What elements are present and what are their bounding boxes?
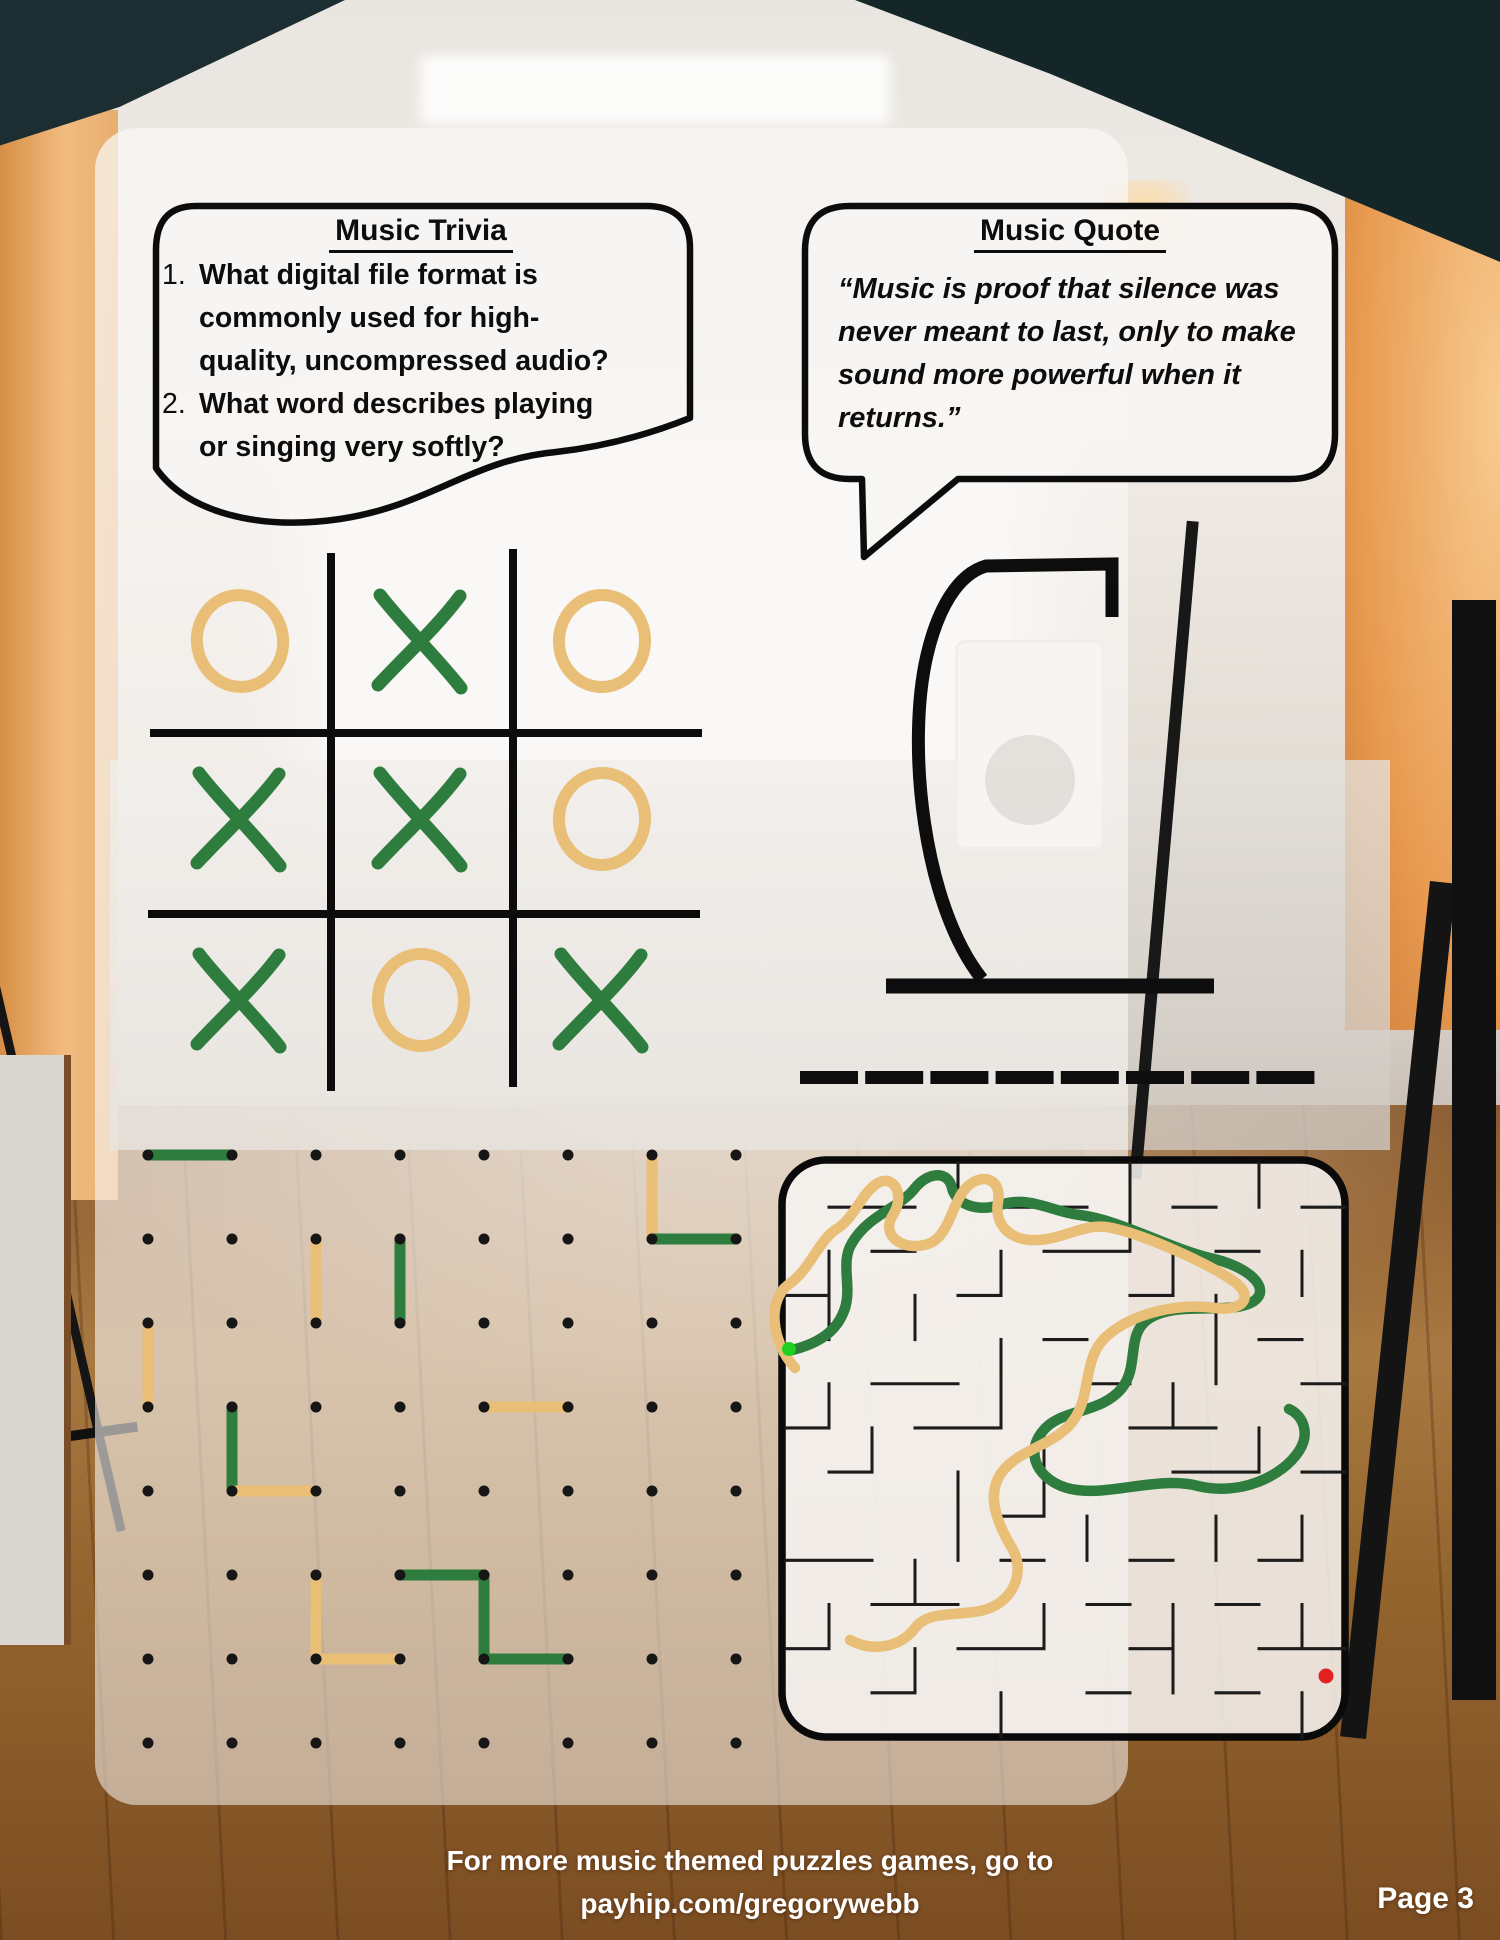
grid-dot (311, 1402, 322, 1413)
grid-dot (731, 1402, 742, 1413)
dots-and-boxes-board[interactable] (143, 1150, 742, 1749)
x-mark (197, 773, 280, 866)
grid-dot (311, 1318, 322, 1329)
trivia-question: 1.What digital file format is commonly u… (162, 254, 624, 383)
maze-board[interactable] (774, 1160, 1345, 1737)
grid-dot (731, 1570, 742, 1581)
grid-dot (731, 1486, 742, 1497)
trivia-question-list: 1.What digital file format is commonly u… (162, 254, 624, 469)
grid-dot (647, 1150, 658, 1161)
grid-dot (563, 1570, 574, 1581)
grid-dot (479, 1570, 490, 1581)
maze-start-dot (782, 1342, 796, 1356)
trivia-question: 2.What word describes playing or singing… (162, 383, 624, 469)
footer-link: payhip.com/gregorywebb (0, 1888, 1500, 1920)
grid-dot (647, 1738, 658, 1749)
grid-dot (395, 1654, 406, 1665)
grid-dot (395, 1738, 406, 1749)
grid-dot (227, 1234, 238, 1245)
grid-dot (395, 1486, 406, 1497)
grid-dot (479, 1318, 490, 1329)
grid-dot (143, 1654, 154, 1665)
x-mark (197, 954, 280, 1047)
grid-dot (563, 1318, 574, 1329)
o-mark (556, 770, 648, 868)
grid-dot (647, 1234, 658, 1245)
letter-blank (1061, 1071, 1119, 1084)
grid-dot (143, 1234, 154, 1245)
grid-dot (227, 1738, 238, 1749)
grid-dot (563, 1738, 574, 1749)
grid-dot (227, 1402, 238, 1413)
grid-dot (479, 1738, 490, 1749)
maze-end-dot (1319, 1669, 1334, 1684)
grid-dot (143, 1318, 154, 1329)
grid-dot (143, 1486, 154, 1497)
grid-dot (143, 1738, 154, 1749)
letter-blank (1126, 1071, 1184, 1084)
grid-dot (227, 1486, 238, 1497)
grid-dot (395, 1570, 406, 1581)
grid-dot (731, 1318, 742, 1329)
grid-dot (395, 1402, 406, 1413)
grid-dot (647, 1570, 658, 1581)
grid-dot (731, 1738, 742, 1749)
letter-blank (1256, 1071, 1314, 1084)
x-mark (378, 773, 461, 866)
grid-dot (227, 1570, 238, 1581)
grid-dot (563, 1150, 574, 1161)
quote-title: Music Quote (805, 214, 1335, 253)
grid-dot (479, 1234, 490, 1245)
grid-dot (731, 1654, 742, 1665)
grid-dot (647, 1402, 658, 1413)
grid-dot (311, 1738, 322, 1749)
letter-blank (865, 1071, 923, 1084)
grid-dot (143, 1402, 154, 1413)
grid-dot (311, 1234, 322, 1245)
letter-blank (930, 1071, 988, 1084)
grid-dot (311, 1570, 322, 1581)
grid-dot (227, 1318, 238, 1329)
footer-line: For more music themed puzzles games, go … (0, 1845, 1500, 1877)
grid-dot (227, 1654, 238, 1665)
x-mark (378, 595, 461, 688)
hangman-gallows (918, 564, 1112, 979)
trivia-title: Music Trivia (152, 214, 690, 253)
grid-dot (143, 1570, 154, 1581)
grid-dot (395, 1150, 406, 1161)
grid-dot (479, 1486, 490, 1497)
letter-blank (996, 1071, 1054, 1084)
letter-blank (1191, 1071, 1249, 1084)
grid-dot (479, 1402, 490, 1413)
grid-dot (311, 1654, 322, 1665)
x-mark (559, 954, 642, 1047)
o-mark (556, 592, 648, 690)
page-number: Page 3 (1377, 1882, 1474, 1916)
grid-dot (143, 1150, 154, 1161)
grid-dot (479, 1150, 490, 1161)
grid-dot (563, 1234, 574, 1245)
grid-dot (731, 1150, 742, 1161)
grid-dot (731, 1234, 742, 1245)
grid-dot (563, 1654, 574, 1665)
grid-dot (647, 1486, 658, 1497)
tic-tac-toe-board[interactable] (148, 549, 702, 1091)
grid-dot (647, 1654, 658, 1665)
o-mark (376, 952, 467, 1048)
hangman-area[interactable] (800, 564, 1314, 1084)
grid-dot (563, 1486, 574, 1497)
letter-blank (800, 1071, 858, 1084)
grid-dot (647, 1318, 658, 1329)
grid-dot (311, 1150, 322, 1161)
grid-dot (227, 1150, 238, 1161)
o-mark (190, 588, 291, 694)
grid-dot (479, 1654, 490, 1665)
grid-dot (395, 1234, 406, 1245)
grid-dot (311, 1486, 322, 1497)
grid-dot (395, 1318, 406, 1329)
grid-dot (563, 1402, 574, 1413)
quote-text: “Music is proof that silence was never m… (838, 268, 1316, 440)
